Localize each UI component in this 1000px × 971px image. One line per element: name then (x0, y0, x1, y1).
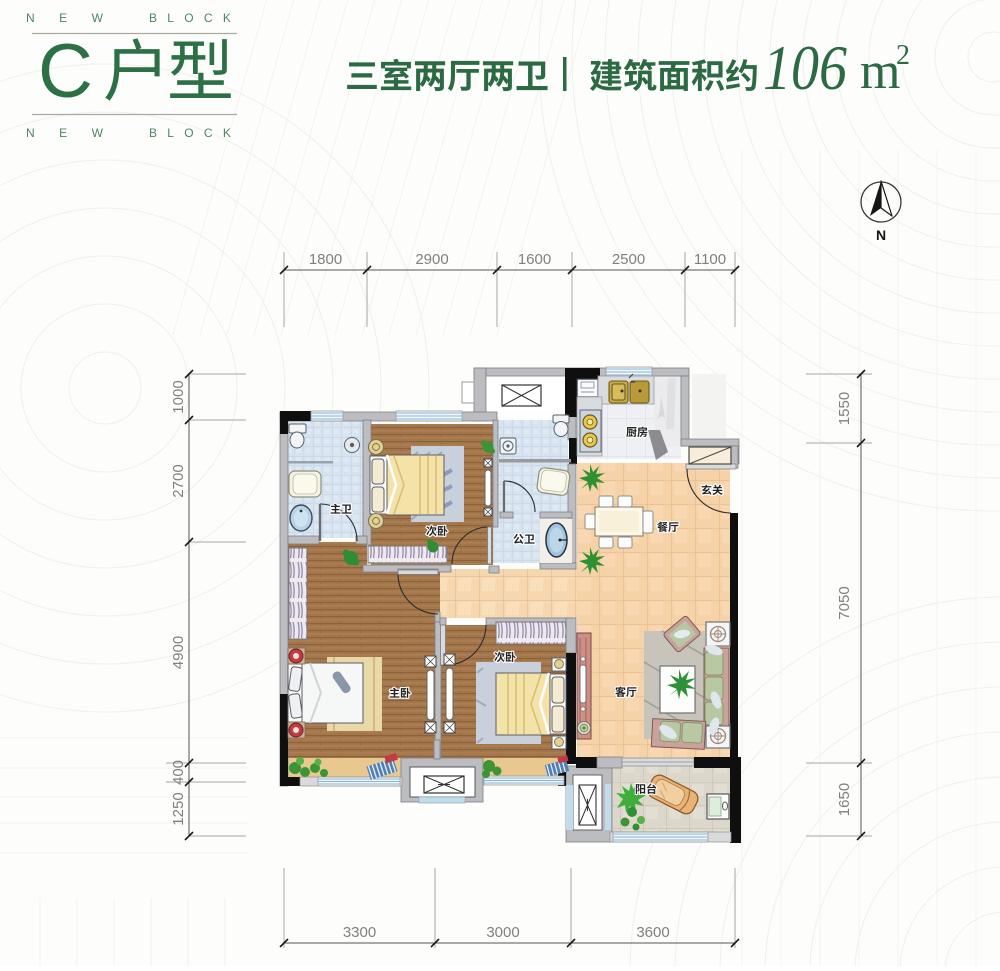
svg-text:1800: 1800 (309, 251, 342, 268)
svg-text:400: 400 (170, 760, 187, 785)
svg-text:NEW: NEW (26, 126, 128, 140)
svg-text:2500: 2500 (612, 251, 645, 268)
svg-text:3600: 3600 (636, 924, 669, 941)
svg-text:2: 2 (896, 40, 910, 71)
svg-text:3000: 3000 (486, 924, 519, 941)
svg-text:N: N (876, 227, 886, 243)
svg-text:1100: 1100 (694, 251, 726, 268)
svg-text:4900: 4900 (170, 636, 187, 669)
svg-text:1000: 1000 (170, 380, 187, 413)
svg-text:NEW: NEW (26, 11, 128, 25)
svg-text:1550: 1550 (836, 392, 853, 425)
svg-text:1250: 1250 (170, 792, 187, 825)
svg-text:2900: 2900 (415, 251, 448, 268)
svg-text:m: m (860, 43, 900, 100)
svg-text:2700: 2700 (170, 464, 187, 497)
svg-text:106: 106 (763, 32, 847, 103)
svg-text:7050: 7050 (836, 586, 853, 619)
svg-text:BLOCK: BLOCK (149, 126, 241, 140)
svg-text:1650: 1650 (836, 783, 853, 816)
svg-text:3300: 3300 (343, 924, 376, 941)
svg-text:1600: 1600 (518, 251, 551, 268)
svg-text:C: C (38, 29, 93, 114)
svg-text:BLOCK: BLOCK (149, 11, 241, 25)
